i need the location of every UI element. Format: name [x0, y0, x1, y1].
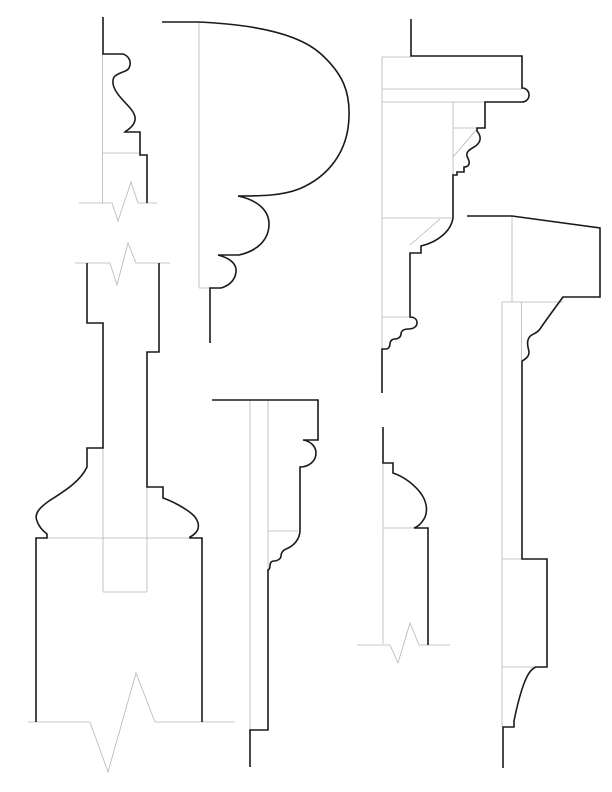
torus-cap-construction-lines: [199, 22, 210, 288]
figure-right-panel-mold: [357, 427, 450, 663]
figure-right-tall-base-profile: [467, 216, 600, 768]
baluster-construction-lines: [28, 243, 235, 772]
molding-profiles-drawing: [0, 0, 612, 792]
figure-top-left-base-cap: [79, 17, 157, 221]
base-cap-construction-lines: [79, 54, 157, 221]
drawing-sheet: [0, 0, 612, 792]
base-cap-profile-line: [103, 17, 147, 203]
figure-top-center-torus-cap: [162, 22, 349, 343]
panel-mold-construction-lines: [357, 463, 450, 663]
tall-base-construction-lines: [502, 216, 563, 727]
figure-center-architrave: [212, 400, 318, 767]
panel-mold-profile-line: [383, 427, 428, 645]
figure-left-baluster-with-plinth: [28, 243, 235, 772]
cornice-profile-line: [382, 19, 529, 393]
figure-top-right-cornice: [382, 19, 529, 393]
baluster-profile-line: [36, 263, 202, 722]
torus-cap-profile-line: [162, 22, 349, 343]
cornice-construction-lines: [382, 57, 522, 350]
architrave-profile-line: [212, 400, 318, 767]
tall-base-profile-line: [467, 216, 600, 768]
architrave-construction-lines: [250, 400, 298, 730]
